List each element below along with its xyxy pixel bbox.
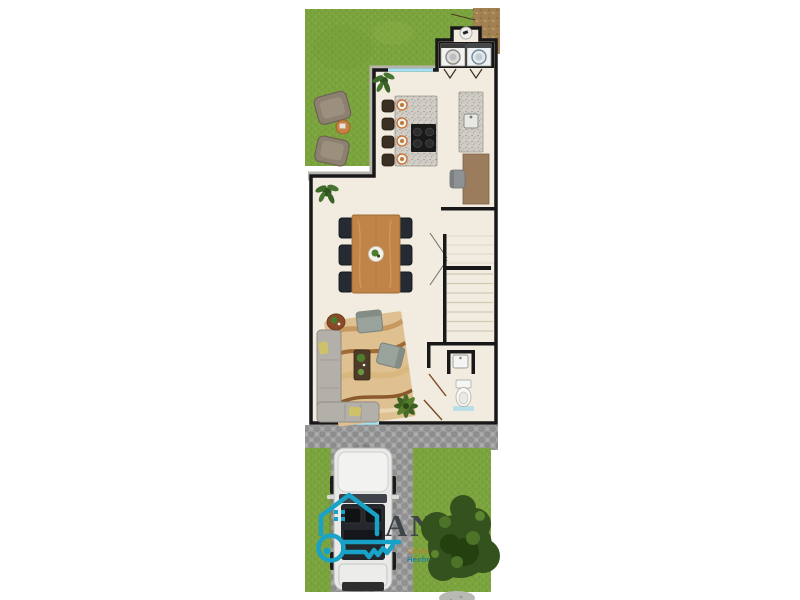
armchair <box>356 310 383 333</box>
kitchen-sink <box>464 114 478 128</box>
stove <box>411 124 436 152</box>
pebble-patch <box>439 591 475 600</box>
washer <box>441 44 465 66</box>
side-table <box>327 314 345 330</box>
desk-chair <box>450 170 465 188</box>
coffee-table <box>354 350 370 380</box>
floor-plan: ANEX Casas y Sueños Hechos Realidad <box>303 8 500 592</box>
tree <box>415 494 500 600</box>
centerpiece <box>369 247 384 262</box>
bathroom-sink <box>453 355 468 368</box>
tree-foliage <box>421 495 500 581</box>
car-seat <box>344 508 361 523</box>
dryer <box>467 44 491 66</box>
water-heater <box>460 27 472 39</box>
car-grille <box>342 582 384 591</box>
windshield <box>339 494 387 503</box>
living-room <box>317 310 418 427</box>
car-roof <box>338 452 388 492</box>
side-mirror <box>327 495 334 499</box>
car <box>327 444 399 592</box>
toilet <box>453 380 474 411</box>
study-desk <box>463 154 489 204</box>
corner-plant <box>394 394 418 418</box>
front-lawn-left <box>305 448 331 592</box>
side-mirror <box>392 495 399 499</box>
car-seat <box>365 508 382 523</box>
pillow <box>349 406 362 416</box>
rear-seat <box>344 530 382 543</box>
floorplan-render-page: ANEX Casas y Sueños Hechos Realidad <box>0 0 800 600</box>
patio-table <box>336 120 350 134</box>
